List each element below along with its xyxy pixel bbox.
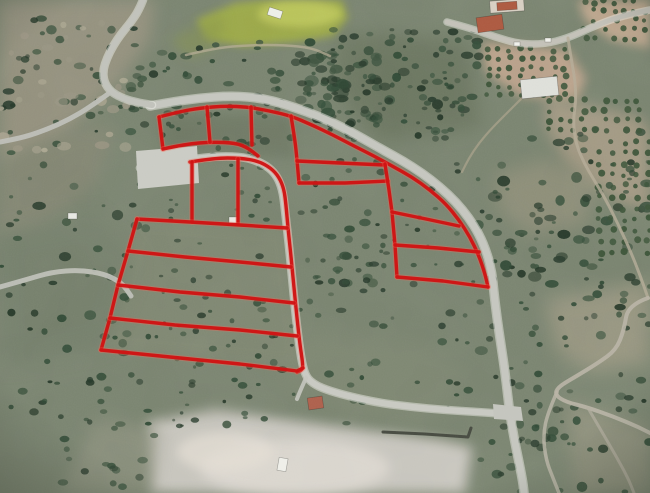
satellite-map-view <box>0 0 650 493</box>
vignette <box>0 0 650 493</box>
aerial-image <box>0 0 650 493</box>
